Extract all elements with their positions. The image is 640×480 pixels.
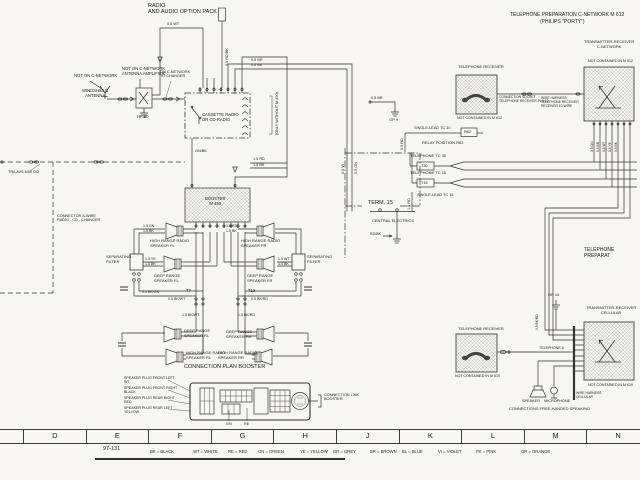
- label-plug-rear-right: SPEAKER PLUG REAR RIGHT RED: [124, 396, 175, 404]
- label-not-on-cnetwork-antenna: NOT ON C-NETWORK: [74, 74, 117, 79]
- color-code-vi: VI = VIOLET: [438, 449, 462, 454]
- label-central-electrics: CENTRAL ELECTRICS: [372, 219, 414, 224]
- label-plug-front-left: SPEAKER PLUG FRONT LEFT WT: [124, 376, 175, 384]
- grid-cell-m: M: [524, 430, 587, 443]
- label-only-without-m490: (ONLY WITHOUT M 490): [275, 92, 279, 135]
- speaker-high-fr: [254, 223, 274, 239]
- wire-label-fr3: 1.5 WT: [278, 257, 290, 261]
- wire-label-p4: 0.5 YE: [609, 142, 613, 152]
- label-separating-filter-right: SEPARATING FILTER: [307, 255, 332, 264]
- wire-label-t7a: 0.5 BK/GN: [142, 290, 159, 294]
- wire-label-rd: 0.5 RD: [400, 138, 404, 150]
- wire-label-p3: 0.5 WT: [603, 141, 607, 152]
- color-code-wt: WT = WHITE: [193, 449, 218, 454]
- wire-label-wb2: 1.5 BK/RD: [238, 313, 255, 317]
- grid-spacer: [0, 430, 23, 443]
- label-not-contained-trx2: NOT CONTAINED IN M 619: [588, 383, 633, 387]
- label-connector-cd-changer: CONNECTOR A-WIRE RADIO - CD - CHANGER: [57, 214, 100, 223]
- wire-label-cell: 0.5 BK/RD: [536, 314, 540, 330]
- label-speaker-high-fl: HIGH RANGE RADIO SPEAKER FL: [150, 239, 189, 248]
- wire-label-bk15: 1.5 BK: [253, 163, 264, 167]
- label-gp9: GP 9: [389, 118, 398, 123]
- label-booster: BOOSTER M 490: [205, 197, 225, 207]
- label-windshield-antenna: WINDSHIELD ANTENNA: [82, 89, 108, 99]
- label-not-contained-receiver-top: NOT CONTAINED IN M 612: [457, 116, 502, 120]
- label-relay-position-r62: RELAY POSITION R62: [422, 141, 463, 146]
- wire-label-t13a: 0.5 BK/RD: [251, 297, 268, 301]
- label-speaker-deep-rl: DEEP RANGE SPEAKER RL: [184, 329, 210, 338]
- label-telephone-tc30: TELEPHONE TC 30: [410, 154, 446, 159]
- wire-label-gn2: 0.5 GN: [354, 162, 358, 174]
- wire-label-fl1: 1.5 GN: [143, 224, 154, 228]
- capacitor-mid-right: [304, 287, 312, 290]
- color-code-br: BR = BROWN: [370, 449, 397, 454]
- wiring-diagram-page: RADIO AND AUDIO OPTION PACK TELEPHONE PR…: [0, 0, 640, 480]
- wire-label-fr4: 1.5 BK: [278, 262, 289, 266]
- sheet-number: 97-131: [103, 446, 120, 452]
- title-philips-porty: (PHILIPS "PORTY"): [540, 20, 585, 26]
- speaker-deep-rr: [254, 326, 274, 342]
- color-code-gn: GN = GREEN: [258, 449, 284, 454]
- grid-cell-h: H: [273, 430, 336, 443]
- wire-label-p5: 0.5 BK: [615, 142, 619, 152]
- grid-cell-e: E: [86, 430, 149, 443]
- color-code-gr: GR = GREY: [333, 449, 356, 454]
- label-single-lead-tc15: SINGLE-LEAD TC 15: [417, 193, 453, 197]
- label-hf90: HF 90: [137, 115, 148, 120]
- label-speaker-deep-fl: DEEP RANGE SPEAKER FL: [154, 274, 180, 283]
- ground-symbol-term15: [393, 234, 401, 243]
- label-telephone-a: TELEPHONE A: [539, 346, 564, 350]
- label-speaker-deep-fr: DEEP RANGE SPEAKER FR: [247, 274, 273, 283]
- label-t30-box: T30: [421, 164, 428, 168]
- label-speaker-deep-rr: DEEP RANGE SPEAKER RR: [226, 330, 252, 339]
- label-connection-plan-booster: CONNECTION PLAN BOOSTER: [184, 364, 265, 370]
- label-t13: T13: [248, 289, 255, 294]
- capacitor-right: [304, 343, 312, 346]
- label-transmitter-receiver-cnetwork: TRANSMITTER-RECEIVER C-NETWORK: [584, 40, 634, 49]
- radio-top-pins: [199, 87, 243, 93]
- speaker-high-fl: [166, 223, 186, 239]
- label-cassette-radio: CASSETTE RADIO OR CD-RADIO: [202, 113, 239, 123]
- label-separating-filter-left: SEPARATING FILTER: [106, 255, 131, 264]
- capacitor-left: [118, 343, 126, 346]
- wire-label-gnbk: GN/BK: [195, 149, 207, 153]
- label-cp-re: RE: [244, 422, 249, 426]
- grid-cell-d: D: [23, 430, 86, 443]
- grid-cell-f: F: [148, 430, 211, 443]
- grid-letter-row: D E F G H J K L M N: [0, 429, 640, 444]
- grid-cell-j: J: [336, 430, 399, 443]
- wire-label-fl4: 1.5 BK: [145, 262, 156, 266]
- label-plug-rear-left: SPEAKER PLUG REAR LEFT YELLOW: [124, 406, 173, 414]
- speaker-deep-fl: [164, 256, 184, 272]
- label-not-contained-trx1: NOT CONTAINED IN M 612: [588, 59, 633, 63]
- grid-cell-k: K: [399, 430, 462, 443]
- label-r62-box: R62: [464, 130, 471, 134]
- label-antenna-amplifier: NOT ON C-NETWORK ANTENNA AMPLIFIER: [122, 67, 165, 77]
- label-speaker-high-fr: HIGH RANGE RADIO SPEAKER FR: [241, 239, 280, 248]
- label-transmitter-receiver-cellular: TRANSMITTER-RECEIVER CELLULAR: [586, 306, 636, 315]
- label-term15: TERM. 15: [368, 200, 393, 206]
- label-cp-gn: GN: [226, 422, 232, 426]
- legend-underline-bar: [95, 458, 345, 460]
- grid-cell-g: G: [211, 430, 274, 443]
- label-single-lead-tc30: SINGLE-LEAD TC 30: [414, 126, 450, 130]
- wire-label-rd15b: 1.5 RD: [407, 198, 411, 210]
- speaker-deep-fr: [254, 256, 274, 272]
- label-speaker-high-rr: HIGH RANGE RADIO SPEAKER RR: [218, 351, 257, 360]
- grid-cell-l: L: [461, 430, 524, 443]
- grid-cell-n: N: [586, 430, 640, 443]
- ground-symbol-gp9: [391, 107, 399, 116]
- title-radio-option-pack: RADIO AND AUDIO OPTION PACK: [148, 3, 217, 16]
- label-tra-avs: TRA AVS 6/50 OO: [8, 170, 39, 174]
- connection-plan-booster: [168, 380, 321, 421]
- label-on-cnetwork-to-changer: ON C-NETWORK TO CHANGER: [160, 70, 190, 79]
- color-code-or: OR = ORANGE: [521, 449, 550, 454]
- title-telephone-preparation: TELEPHONE PREPARATION C-NETWORK M 612: [510, 13, 624, 19]
- wire-label-p1: 0.5 GN: [591, 142, 595, 152]
- wire-label-fl3: 1.5 YE: [145, 257, 156, 261]
- speaker-deep-rl: [164, 326, 184, 342]
- wire-label-fr1: 1.5 RD: [226, 224, 237, 228]
- wire-label-wb1: 1.5 BK/WT: [182, 313, 199, 317]
- label-t7: T7: [186, 289, 191, 294]
- color-code-bk: BK = BLACK: [150, 449, 174, 454]
- wire-label-pwr: 0.5 WT: [167, 22, 179, 26]
- speaker-high-rl: [166, 349, 186, 365]
- label-freehand-speaking: CONNECTIONS FREE-HANDED SPEAKING: [509, 407, 590, 412]
- label-telephone-receiver-top: TELEPHONE RECEIVER: [458, 65, 504, 70]
- label-not-contained-receiver-bottom: NOT CONTAINED IN M 619: [455, 374, 500, 378]
- label-speaker: SPEAKER: [522, 399, 540, 403]
- color-code-bl: BL = BLUE: [402, 449, 423, 454]
- label-gp14: GP 14: [548, 293, 559, 298]
- wire-label-t7b: 0.5 BK/WT: [168, 297, 185, 301]
- label-rdbk: RD/BK: [370, 232, 381, 236]
- label-microphone: MICROPHONE: [544, 399, 570, 403]
- label-wire-harness-receiver: WIRE HARNESS TELEPHONE RECEIVER RECEIVER…: [541, 97, 579, 108]
- wire-label-fl2: 1.5 BK: [143, 229, 154, 233]
- wire-label-vi: 0.5 VI: [341, 164, 345, 174]
- label-connection-link-booster: CONNECTION LINK BOOSTER: [324, 393, 359, 402]
- label-telephone-receiver-bottom: TELEPHONE RECEIVER: [458, 327, 504, 332]
- label-t15-box: T15: [421, 181, 428, 185]
- wire-label-rd15: 1.5 RD: [253, 157, 265, 161]
- color-code-re: RE = RED: [228, 449, 247, 454]
- wire-label-fuse: 0.5 RD/BK: [225, 48, 229, 66]
- wire-label-fr2: 1.5 BK: [226, 229, 237, 233]
- color-code-pk: PK = PINK: [476, 449, 496, 454]
- wire-label-br: 0.5 BR: [251, 58, 263, 62]
- label-plug-front-right: SPEAKER PLUG FRONT RIGHT BLACK: [124, 386, 177, 394]
- label-telephone-tc15: TELEPHONE TC 15: [410, 171, 446, 176]
- wire-label-gp9: 0.5 BR: [371, 96, 383, 100]
- title-telephone-preparation-clipped: TELEPHONE PREPARAT: [584, 248, 640, 260]
- color-code-ye: YE = YELLOW: [300, 449, 328, 454]
- capacitor-mid-left: [120, 287, 128, 290]
- radio-supply-wires: [152, 8, 352, 183]
- label-wire-harness-cellular: WIRE HARNESS CELLULAR: [576, 392, 601, 400]
- wire-label-p2: 0.5 BR: [597, 142, 601, 152]
- wire-label-bk: 0.5 BK: [251, 63, 262, 67]
